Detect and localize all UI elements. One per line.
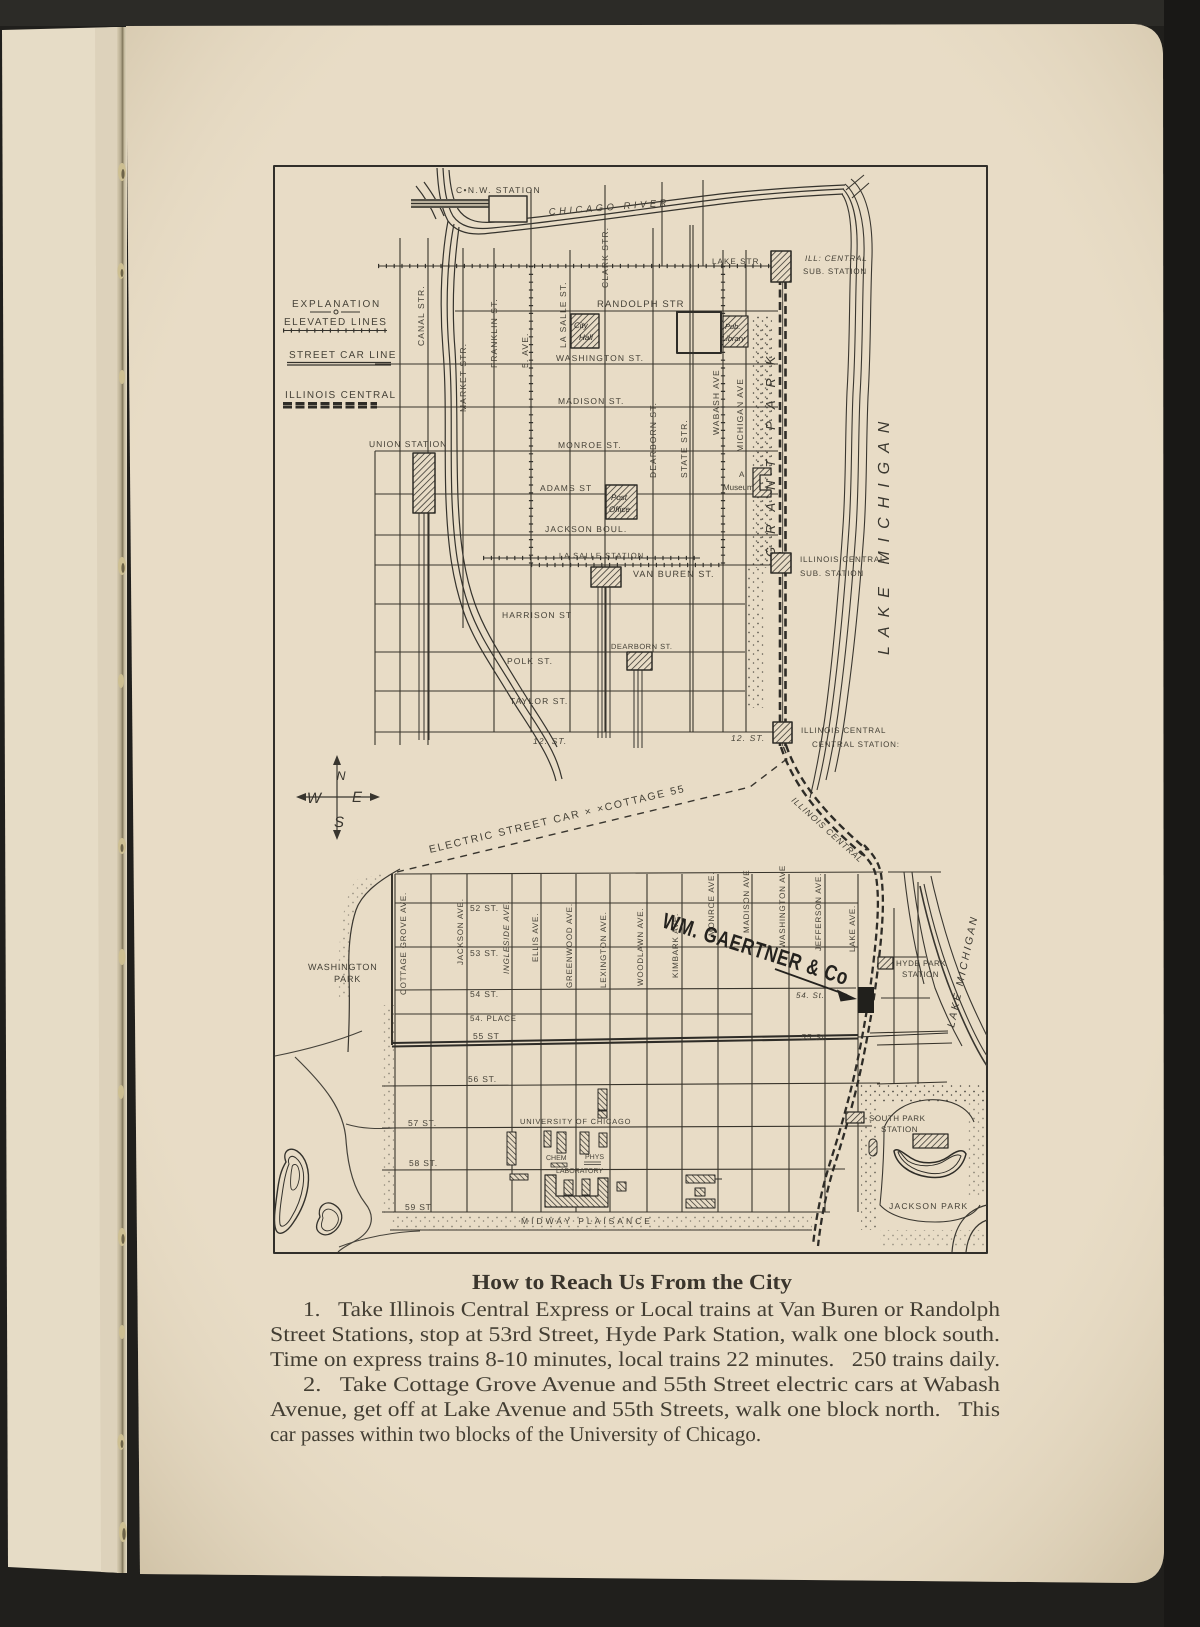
svg-text:HARRISON ST: HARRISON ST: [502, 610, 572, 620]
svg-text:MADISON AVE: MADISON AVE: [742, 870, 751, 933]
svg-text:HYDE PARK: HYDE PARK: [896, 959, 946, 968]
svg-text:ILLINOIS CENTRAL: ILLINOIS CENTRAL: [801, 726, 886, 735]
svg-text:MIDWAY PLAISANCE: MIDWAY PLAISANCE: [521, 1216, 653, 1226]
svg-text:FRANKLIN ST.: FRANKLIN ST.: [489, 298, 499, 368]
svg-text:ILLINOIS CENTRAL: ILLINOIS CENTRAL: [800, 555, 885, 564]
svg-text:PHYS: PHYS: [585, 1154, 604, 1161]
svg-text:UNIVERSITY OF CHICAGO: UNIVERSITY OF CHICAGO: [520, 1117, 631, 1126]
svg-text:DEARBORN ST.: DEARBORN ST.: [648, 402, 658, 478]
svg-text:MICHIGAN AVE: MICHIGAN AVE: [735, 378, 745, 452]
svg-text:SUB. STATION: SUB. STATION: [800, 569, 864, 578]
svg-text:WASHINGTON AVE: WASHINGTON AVE: [778, 865, 787, 948]
svg-text:57 ST.: 57 ST.: [408, 1118, 437, 1128]
svg-text:Library: Library: [722, 334, 746, 343]
svg-text:EXPLANATION: EXPLANATION: [292, 299, 381, 310]
svg-text:WASHINGTON ST.: WASHINGTON ST.: [556, 353, 644, 363]
svg-text:ELLIS AVE.: ELLIS AVE.: [531, 913, 540, 962]
svg-text:Post: Post: [611, 493, 628, 502]
svg-text:INGLESIDE AVE.: INGLESIDE AVE.: [502, 900, 511, 974]
svg-text:MARKET STR.: MARKET STR.: [458, 343, 468, 412]
svg-text:STATE STR.: STATE STR.: [679, 419, 689, 478]
svg-text:car passes within two blocks o: car passes within two blocks of the Univ…: [270, 1422, 761, 1446]
svg-text:ADAMS ST: ADAMS ST: [540, 483, 592, 493]
svg-text:ELEVATED LINES: ELEVATED LINES: [284, 317, 387, 328]
svg-text:SUB. STATION: SUB. STATION: [803, 267, 867, 276]
svg-text:52 ST.: 52 ST.: [470, 903, 499, 913]
svg-text:UNION STATION: UNION STATION: [369, 439, 447, 449]
svg-text:JACKSON BOUL.: JACKSON BOUL.: [545, 524, 627, 534]
svg-text:Office: Office: [609, 505, 630, 514]
svg-text:VAN BUREN ST.: VAN BUREN ST.: [633, 569, 715, 579]
svg-text:LABORATORY: LABORATORY: [556, 1168, 603, 1175]
svg-text:S: S: [334, 814, 344, 831]
svg-text:W: W: [307, 790, 323, 807]
svg-text:STATION: STATION: [881, 1125, 918, 1134]
svg-text:CANAL STR.: CANAL STR.: [416, 285, 426, 346]
svg-text:WOODLAWN AVE.: WOODLAWN AVE.: [636, 908, 645, 986]
svg-text:LAKE AVE.: LAKE AVE.: [848, 905, 857, 952]
svg-text:GREENWOOD AVE.: GREENWOOD AVE.: [565, 903, 574, 988]
svg-text:5. AVE.: 5. AVE.: [520, 333, 530, 368]
svg-text:C•N.W. STATION: C•N.W. STATION: [456, 185, 541, 195]
svg-text:Avenue, get off at Lake Avenue: Avenue, get off at Lake Avenue and 55th …: [270, 1397, 1000, 1421]
svg-text:LA SALLE ST.: LA SALLE ST.: [558, 281, 568, 348]
svg-text:12. ST.: 12. ST.: [731, 733, 765, 743]
svg-text:55 ST: 55 ST: [473, 1031, 500, 1041]
svg-text:Pub.: Pub.: [725, 322, 740, 331]
svg-text:COTTAGE GROVE AVE.: COTTAGE GROVE AVE.: [399, 892, 408, 995]
svg-text:LAKE MICHIGAN: LAKE MICHIGAN: [876, 413, 893, 655]
svg-text:58 ST.: 58 ST.: [409, 1158, 438, 1168]
svg-text:Museum: Museum: [723, 483, 754, 492]
svg-text:CHEM: CHEM: [546, 1155, 567, 1162]
svg-text:JACKSON AVE.: JACKSON AVE.: [456, 898, 465, 965]
svg-text:RANDOLPH STR: RANDOLPH STR: [597, 299, 685, 310]
svg-text:JACKSON PARK: JACKSON PARK: [889, 1201, 968, 1211]
svg-text:54. St.: 54. St.: [796, 991, 825, 1000]
svg-text:WASHINGTON: WASHINGTON: [308, 962, 378, 972]
svg-text:LEXINGTON AVE.: LEXINGTON AVE.: [599, 911, 608, 988]
svg-text:PARK: PARK: [334, 974, 361, 984]
svg-text:ILL: CENTRAL: ILL: CENTRAL: [805, 254, 868, 263]
svg-text:2. Take Cottage Grove Avenue: 2. Take Cottage Grove Avenue and 55th St…: [303, 1372, 1001, 1396]
svg-text:N: N: [336, 769, 346, 783]
svg-text:MONROE ST.: MONROE ST.: [558, 440, 622, 450]
svg-text:E: E: [352, 789, 363, 806]
svg-text:WABASH AVE: WABASH AVE: [711, 369, 721, 435]
svg-text:CLARK STR.: CLARK STR.: [600, 227, 610, 288]
svg-text:56 ST.: 56 ST.: [468, 1074, 497, 1084]
svg-text:Hall: Hall: [579, 333, 593, 342]
svg-text:City: City: [574, 321, 589, 330]
svg-text:LAKE STR.: LAKE STR.: [712, 257, 763, 266]
svg-text:54. PLACE: 54. PLACE: [470, 1014, 517, 1023]
svg-text:Time on express trains 8-10 mi: Time on express trains 8-10 minutes, loc…: [270, 1347, 1000, 1371]
svg-text:MADISON ST.: MADISON ST.: [558, 396, 624, 406]
svg-text:CENTRAL STATION:: CENTRAL STATION:: [812, 740, 900, 749]
svg-text:How to Reach Us From the City: How to Reach Us From the City: [472, 1270, 792, 1294]
svg-text:GRANT PARK: GRANT PARK: [763, 343, 778, 557]
svg-text:55 St.: 55 St.: [801, 1032, 828, 1042]
svg-text:STREET CAR LINE: STREET CAR LINE: [289, 350, 397, 361]
svg-text:A: A: [739, 470, 745, 479]
svg-text:JEFFERSON AVE.: JEFFERSON AVE.: [814, 873, 823, 951]
svg-text:Street Stations, stop at 53rd: Street Stations, stop at 53rd Street, Hy…: [270, 1322, 1000, 1346]
svg-text:SOUTH PARK: SOUTH PARK: [869, 1114, 926, 1123]
svg-text:ILLINOIS CENTRAL: ILLINOIS CENTRAL: [285, 390, 396, 401]
svg-text:59 ST: 59 ST: [405, 1202, 432, 1212]
svg-text:53 ST.: 53 ST.: [470, 948, 499, 958]
svg-text:LA SALLE STATION: LA SALLE STATION: [559, 551, 644, 560]
svg-text:POLK ST.: POLK ST.: [507, 656, 553, 666]
svg-text:54 ST.: 54 ST.: [470, 989, 499, 999]
svg-text:DEARBORN ST.: DEARBORN ST.: [611, 642, 672, 651]
svg-text:1. Take Illinois Central Exp: 1. Take Illinois Central Express or Loca…: [303, 1297, 1001, 1321]
